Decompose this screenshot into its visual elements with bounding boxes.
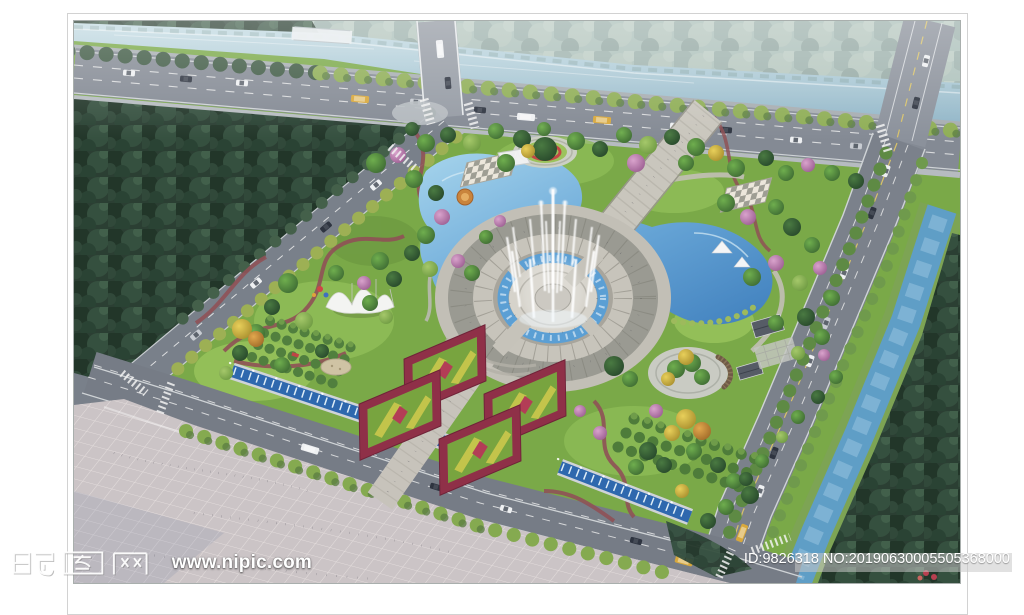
park-rendering-scene	[74, 21, 960, 583]
park-rendering-image	[74, 21, 960, 583]
page-root: { "watermarks": { "site_name": "昵图网", "s…	[0, 0, 1024, 583]
image-id-text: ID:9826318 NO:20190630005505368000	[744, 551, 1010, 567]
sand-circle	[321, 359, 351, 375]
atmospheric-haze	[74, 21, 960, 141]
